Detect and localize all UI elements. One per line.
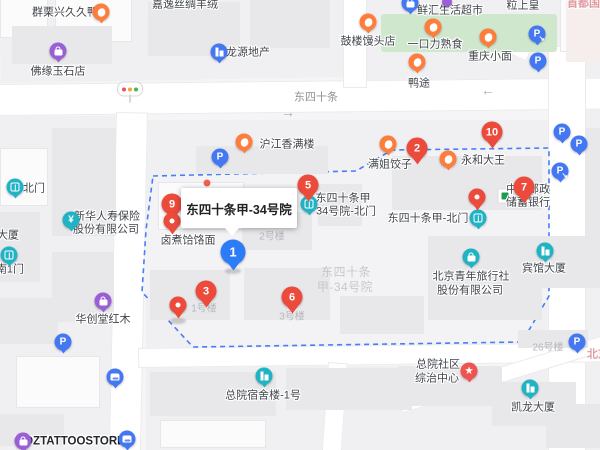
gate-marker-north[interactable] xyxy=(470,210,487,227)
poi-label[interactable]: 粒上皇 xyxy=(507,0,540,12)
poi-label[interactable]: 东四十条甲-北门 xyxy=(388,213,469,226)
poi-label[interactable]: MDZTATTOOSTORE xyxy=(15,435,125,448)
poi-label[interactable]: 总院社区 xyxy=(416,359,460,372)
map-label: 2号楼 xyxy=(259,231,285,243)
shopping-marker-mdzt[interactable] xyxy=(15,433,32,450)
building xyxy=(16,356,100,408)
poi-label[interactable]: 鲜汇生活超市 xyxy=(417,5,483,18)
poi-label[interactable]: 鼓楼馒头店 xyxy=(341,36,396,49)
building xyxy=(340,296,424,334)
poi-label[interactable]: 北门 xyxy=(23,183,45,196)
building xyxy=(150,270,230,320)
building xyxy=(286,368,412,410)
poi-label[interactable]: 综治中心 xyxy=(415,373,459,386)
bus-marker-2[interactable] xyxy=(119,431,136,448)
result-pin-5[interactable]: 5 xyxy=(298,175,319,196)
building xyxy=(160,420,266,448)
poi-label[interactable]: 总院宿舍楼-1号 xyxy=(225,390,301,403)
parking-marker-2[interactable]: P xyxy=(212,149,229,166)
poi-label[interactable]: 佛缘玉石店 xyxy=(31,66,86,79)
company-marker-longyuan[interactable] xyxy=(211,44,228,61)
result-pin-6[interactable]: 6 xyxy=(282,287,303,308)
building-marker-kailong[interactable] xyxy=(522,380,539,397)
company-marker-cyts[interactable] xyxy=(463,249,480,266)
location-pin-north-gate[interactable] xyxy=(469,189,486,206)
result-pin-3[interactable]: 3 xyxy=(196,281,217,302)
poi-label[interactable]: 华创堂红木 xyxy=(76,314,131,327)
poi-label[interactable]: 北京青年旅行社 xyxy=(433,271,510,284)
parking-marker-5[interactable]: P xyxy=(569,334,586,351)
selected-place-infobox[interactable]: 东四十条甲-34号院 xyxy=(181,188,297,228)
building xyxy=(0,148,48,206)
selected-pin-1[interactable]: 1 xyxy=(221,240,246,265)
poi-label[interactable]: 龙源地产 xyxy=(226,47,270,60)
food-marker-gulou[interactable] xyxy=(360,14,377,31)
pin-shadow xyxy=(170,318,186,324)
food-marker-yonghe[interactable] xyxy=(440,151,457,168)
food-marker-hujiang[interactable] xyxy=(236,134,253,151)
location-pin-luzhu[interactable] xyxy=(164,213,181,230)
poi-label[interactable]: 群栗兴久久鸭 xyxy=(32,7,98,20)
road-direction-arrow-icon: → xyxy=(281,104,295,120)
food-marker-yatu[interactable] xyxy=(409,54,426,71)
parking-entrance-marker-2[interactable]: P↘ xyxy=(552,163,569,180)
poi-label[interactable]: 新华人寿保险 xyxy=(74,211,140,224)
food-marker-chongqing[interactable] xyxy=(480,29,497,46)
result-pin-10[interactable]: 10 xyxy=(482,122,503,143)
poi-label[interactable]: 股份有限公司 xyxy=(73,224,139,237)
building xyxy=(250,0,330,48)
poi-label[interactable]: 沪江香满楼 xyxy=(260,139,315,152)
road-direction-arrow-icon: ← xyxy=(481,82,495,98)
map-label: 甲-34号院 xyxy=(317,281,373,295)
result-pin-2[interactable]: 2 xyxy=(407,138,428,159)
poi-label[interactable]: 鸭途 xyxy=(408,78,430,91)
poi-label[interactable]: 满姐饺子 xyxy=(368,159,412,172)
building-marker-binguan[interactable] xyxy=(537,243,554,260)
star-marker-zongzhi[interactable]: ★ xyxy=(461,363,478,380)
parking-marker-6[interactable]: P xyxy=(55,334,72,351)
map-label: 首都国医 xyxy=(567,0,600,10)
map-canvas[interactable]: 东四十条甲-34号院 P↘PP210PPP↘7591¥PP★36群栗兴久久鸭嘉逸… xyxy=(0,0,600,450)
food-marker-qunlixing[interactable] xyxy=(93,4,110,21)
poi-label[interactable]: 永和大王 xyxy=(461,155,505,168)
food-marker-yikouli[interactable] xyxy=(425,19,442,36)
gate-marker-beimen-west[interactable] xyxy=(7,179,24,196)
insurance-marker-xinhua[interactable]: ¥ xyxy=(63,212,80,229)
poi-label[interactable]: 一口力熟食 xyxy=(408,39,463,52)
poi-label[interactable]: 34号院-北门 xyxy=(316,206,376,219)
map-label: 北京 xyxy=(587,349,600,362)
parking-marker-4[interactable]: P xyxy=(571,136,588,153)
poi-label[interactable]: 大厦 xyxy=(0,230,19,243)
road-label: 东四十条 xyxy=(294,92,338,105)
selected-place-name: 东四十条甲-34号院 xyxy=(186,199,292,218)
shopping-marker-huachuang[interactable] xyxy=(95,293,112,310)
poi-label[interactable]: 卤煮饸饹面 xyxy=(161,235,216,248)
poi-dot-marker[interactable] xyxy=(204,180,211,187)
parking-entrance-marker-1[interactable]: P↘ xyxy=(529,26,546,43)
parking-marker-3[interactable]: P xyxy=(554,124,571,141)
parking-marker-1[interactable]: P xyxy=(530,53,547,70)
result-pin-7[interactable]: 7 xyxy=(514,177,535,198)
bus-marker-1[interactable] xyxy=(107,369,124,386)
building xyxy=(0,298,58,344)
map-label: 东四十条 xyxy=(321,266,371,280)
poi-label[interactable]: 东四十条甲 xyxy=(316,193,371,206)
food-marker-manjie[interactable] xyxy=(380,136,397,153)
poi-label[interactable]: 凯龙大厦 xyxy=(511,402,555,415)
result-pin-9[interactable]: 9 xyxy=(162,194,183,215)
gate-marker-nan1men[interactable] xyxy=(1,247,18,264)
poi-label[interactable]: 重庆小面 xyxy=(468,51,512,64)
poi-label[interactable]: 宾馆大厦 xyxy=(522,263,566,276)
building-marker-zongyuan[interactable] xyxy=(256,368,273,385)
shopping-marker-foyuan[interactable] xyxy=(50,43,67,60)
poi-label[interactable]: 股份有限公司 xyxy=(437,285,503,298)
location-pin-1haolou[interactable] xyxy=(170,297,187,314)
poi-label[interactable]: 嘉逸丝绸羊绒 xyxy=(152,0,218,11)
traffic-light-marker[interactable] xyxy=(117,82,143,97)
map-label: 26号楼 xyxy=(532,342,563,354)
